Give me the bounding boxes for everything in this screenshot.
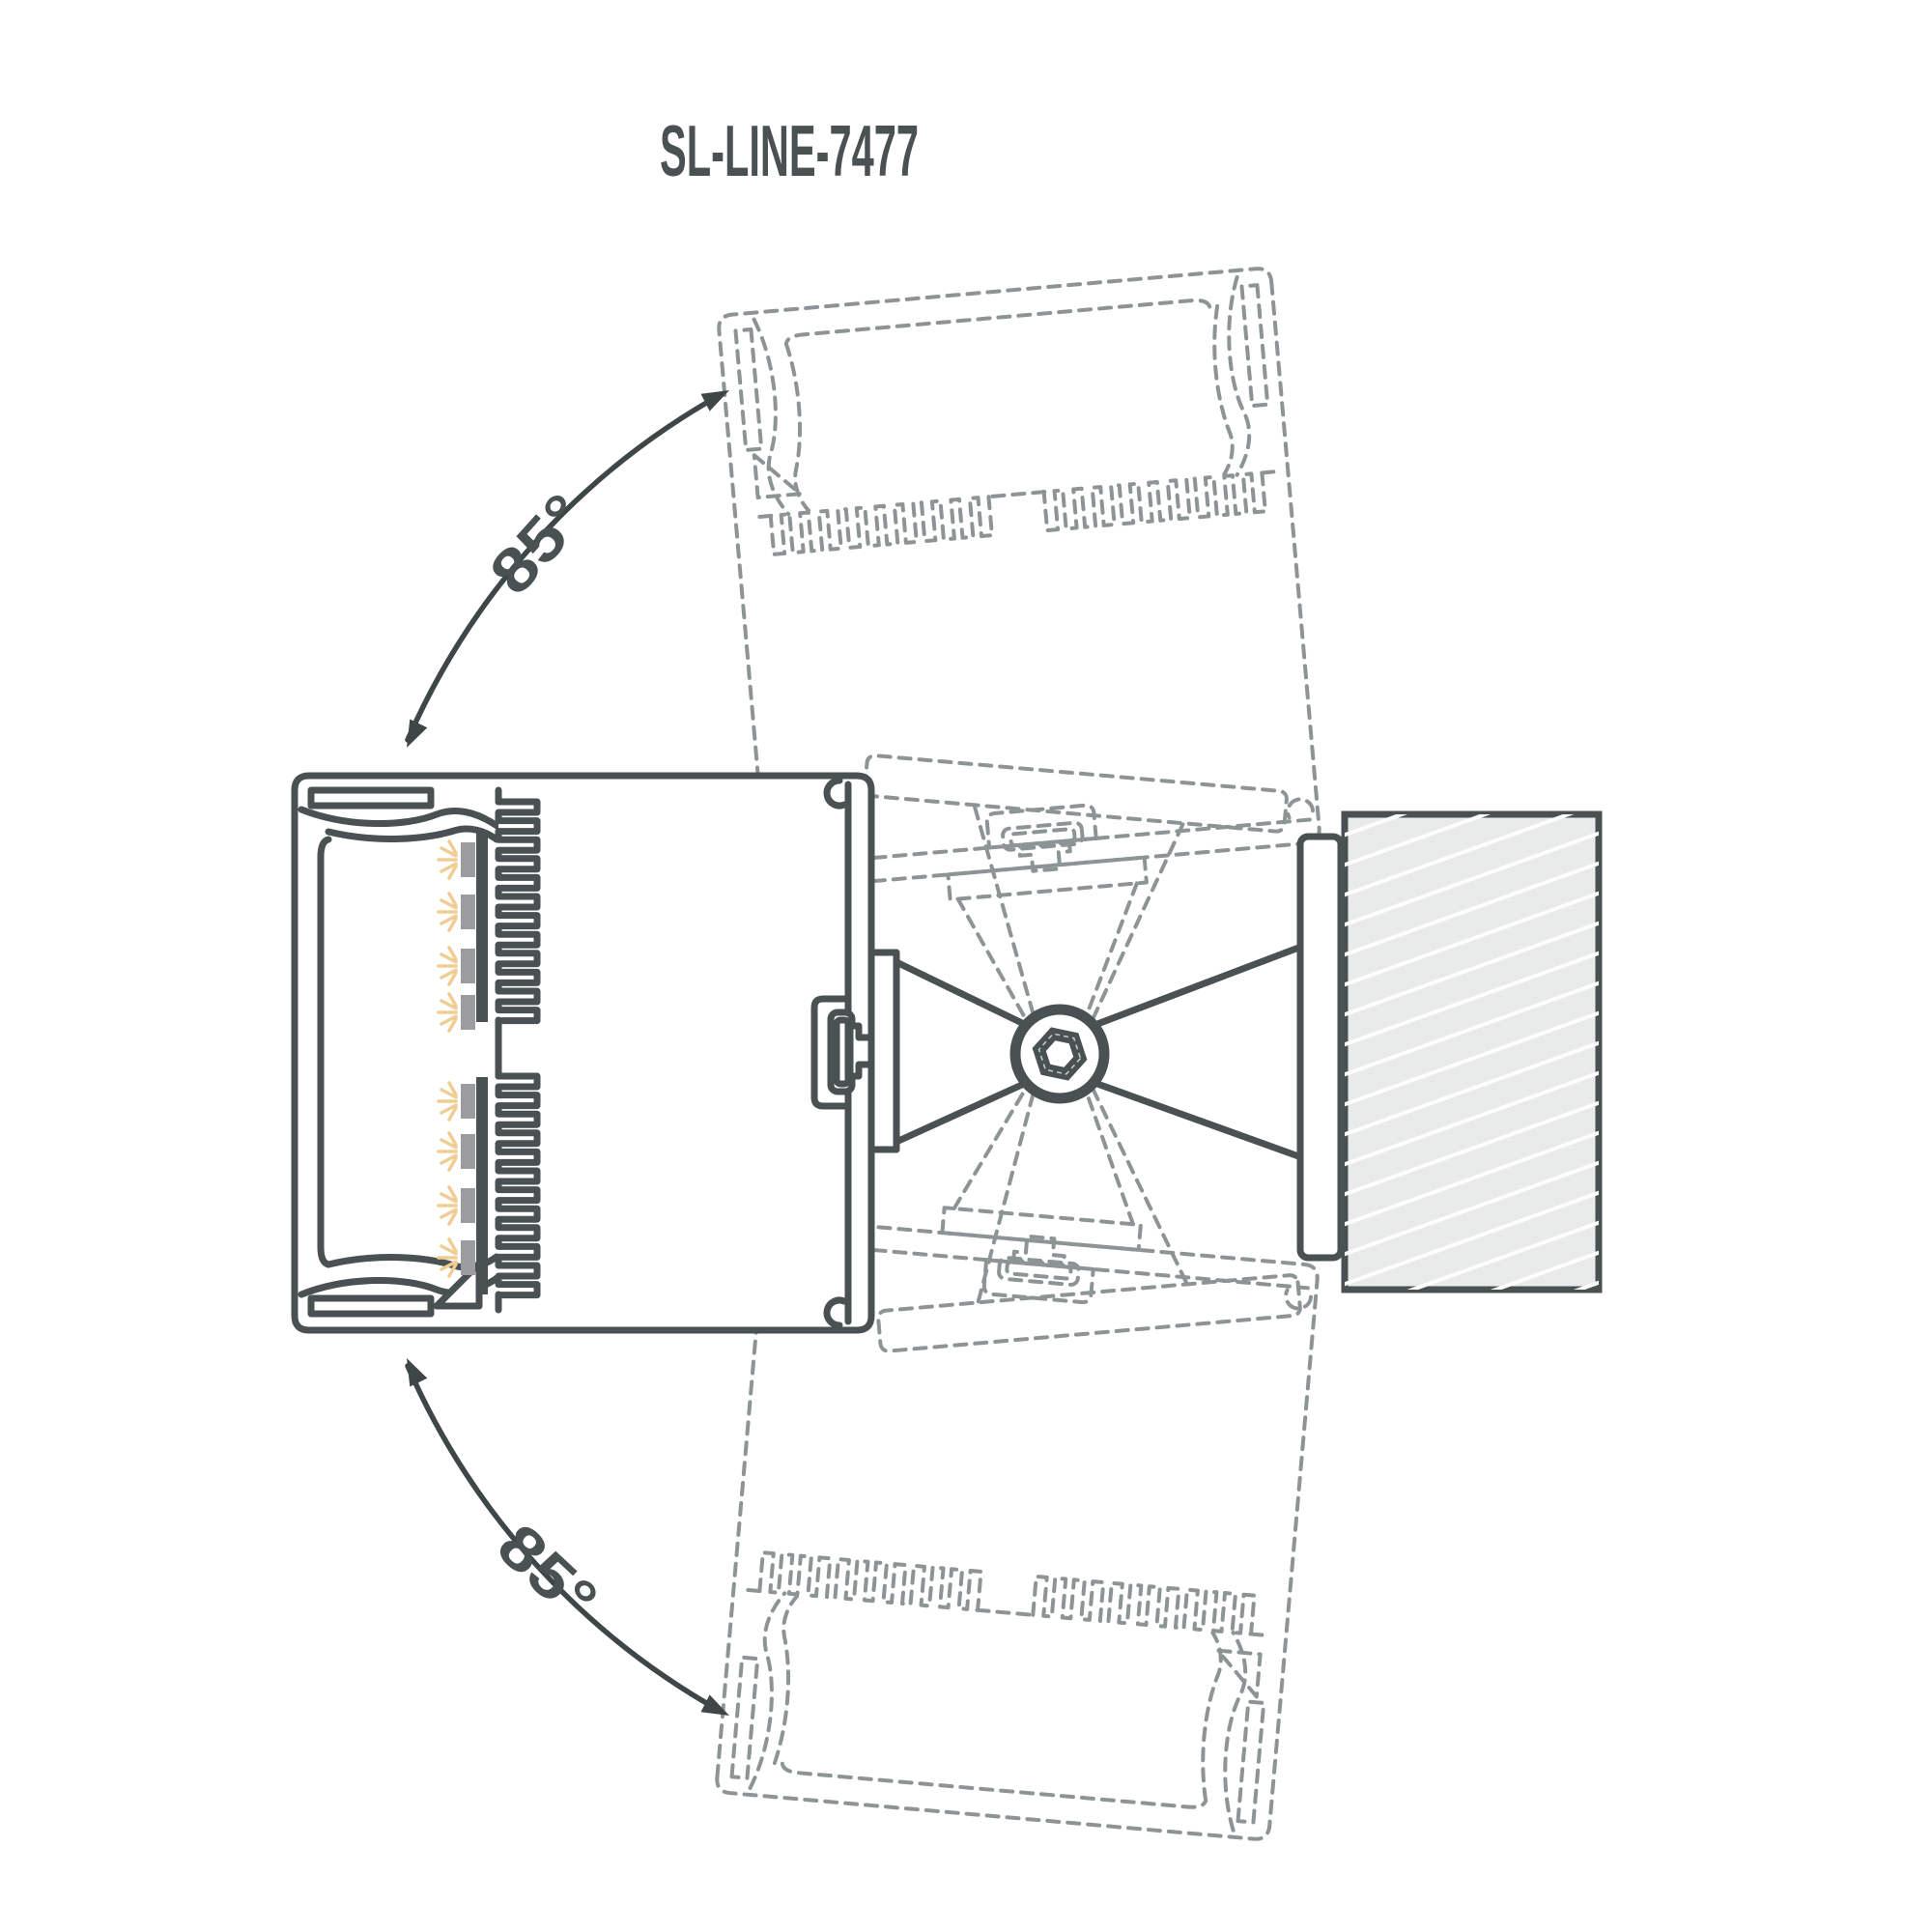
- led-pcb-upper: [476, 833, 488, 1022]
- hex-socket-screw-icon: [1015, 1009, 1104, 1098]
- technical-drawing: 85° 85° SL-LINE-7477: [0, 0, 1932, 1932]
- diagram-canvas: 85° 85° SL-LINE-7477: [0, 0, 1932, 1932]
- page-title: SL-LINE-7477: [660, 110, 919, 191]
- rotation-arrow-down: [407, 1358, 729, 1716]
- wall-mount-surface: [1343, 743, 1601, 1375]
- rotation-arrow-up: [407, 390, 729, 748]
- led-pcb-lower: [476, 1077, 488, 1294]
